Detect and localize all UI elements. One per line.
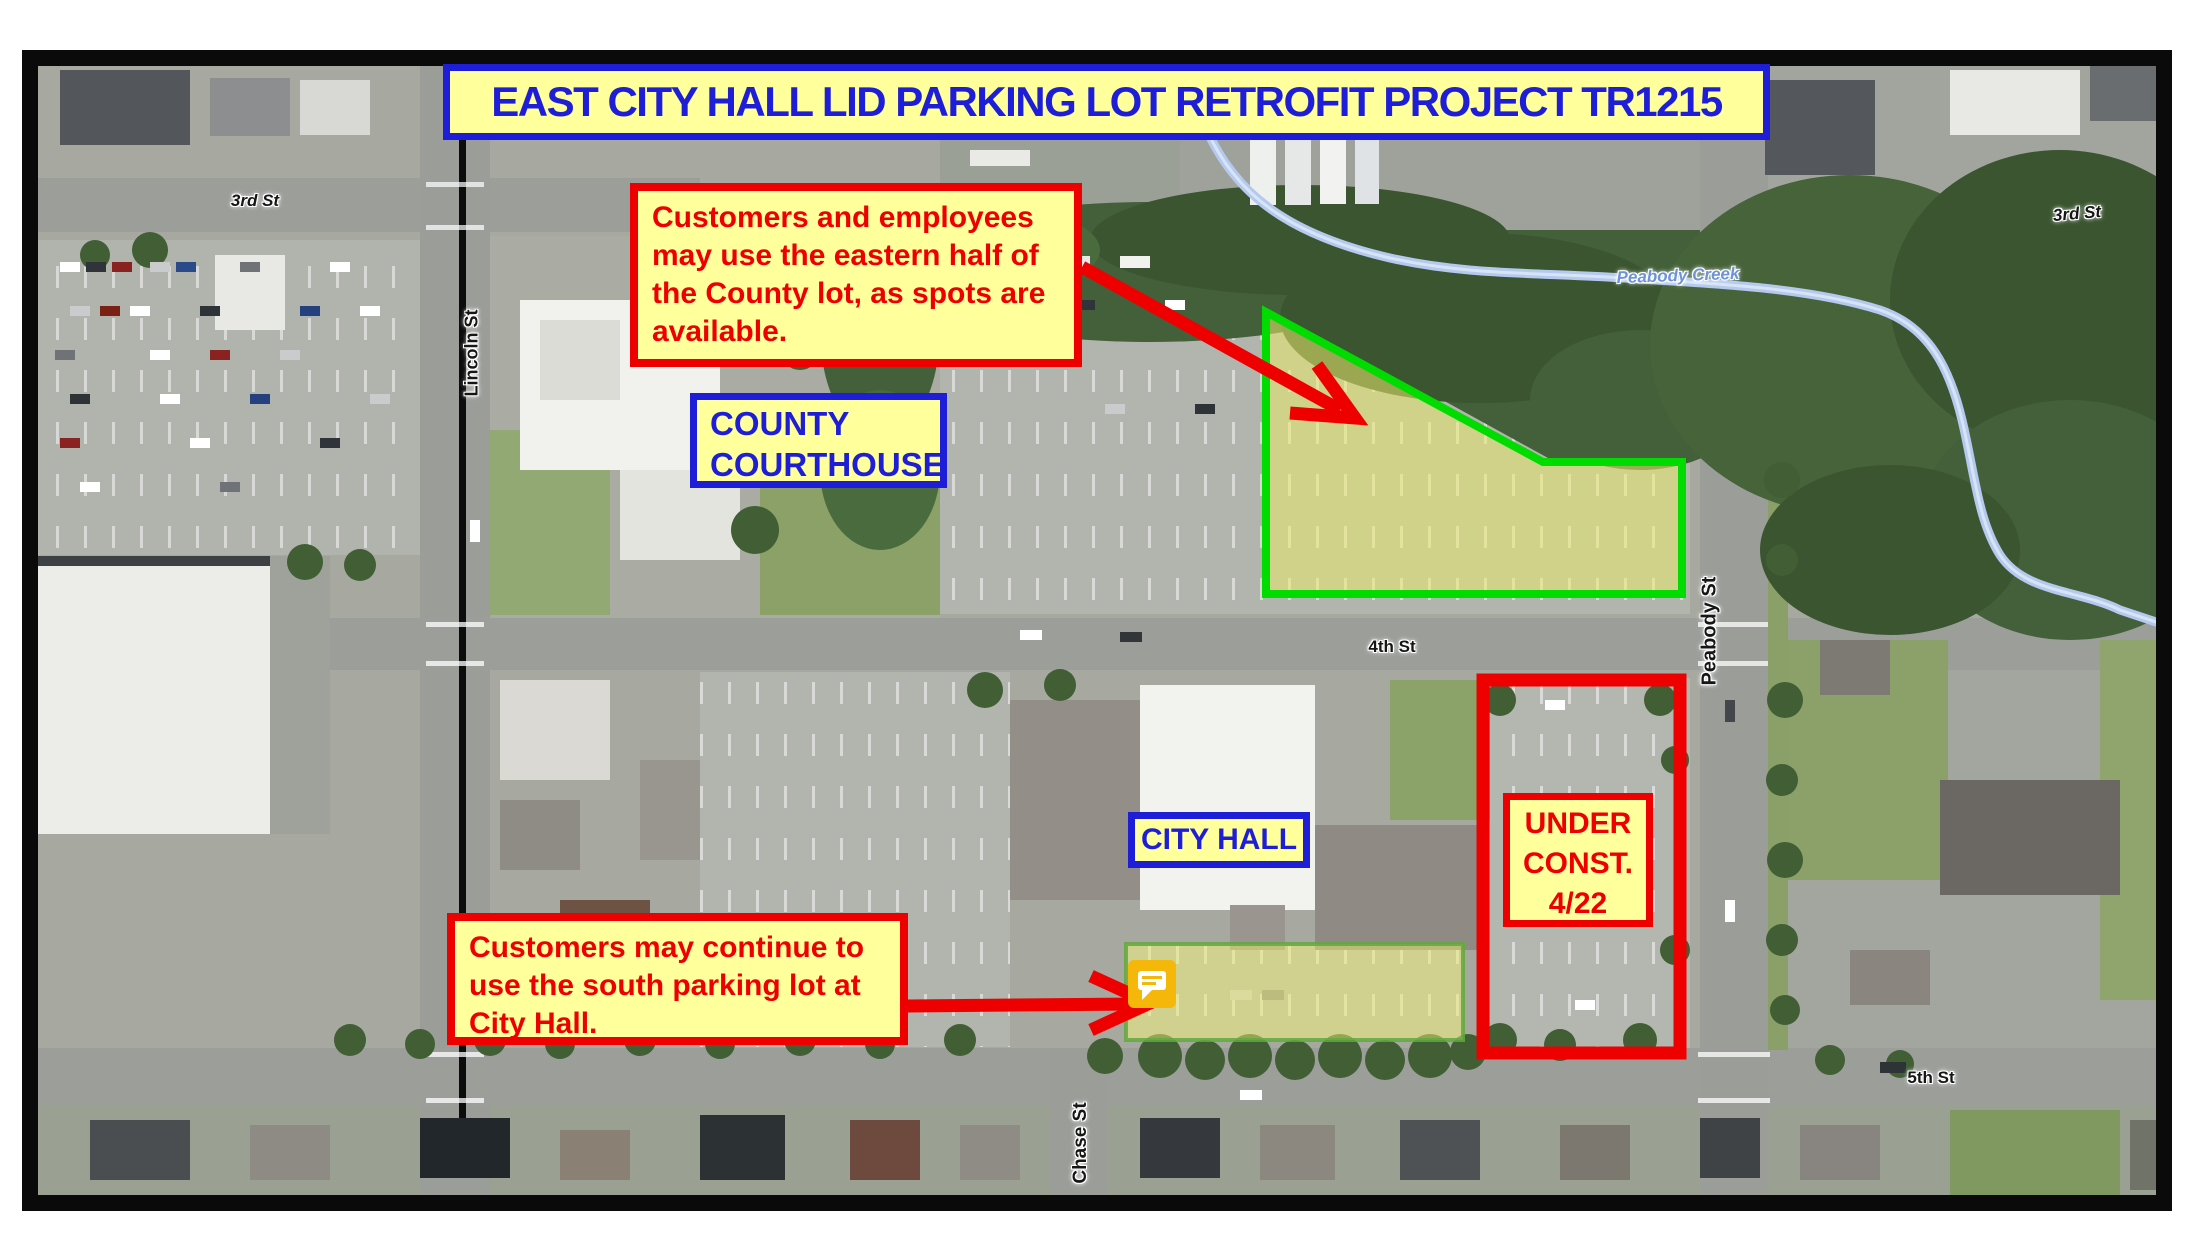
callout-county-line1: Customers and employees (652, 199, 1074, 237)
south-lot-highlight (1126, 944, 1463, 1040)
callout-south-lot: Customers may continue to use the south … (447, 913, 908, 1045)
street-label-3rd-st-east: 3rd St (2052, 202, 2102, 226)
county-courthouse-label: COUNTY COURTHOUSE (690, 393, 947, 488)
city-hall-building (1140, 685, 1315, 910)
street-label-chase-st: Chase St (1070, 1102, 1092, 1183)
map-frame (22, 50, 2172, 1211)
aerial-basemap (38, 66, 2156, 1195)
callout-south-line2: use the south parking lot at (469, 967, 900, 1005)
county-courthouse-line1: COUNTY (710, 403, 940, 444)
under-construction-label: UNDER CONST. 4/22 (1503, 793, 1653, 927)
title-banner: EAST CITY HALL LID PARKING LOT RETROFIT … (443, 64, 1770, 140)
callout-county-line2: may use the eastern half of (652, 237, 1074, 275)
street-label-lincoln-st: Lincoln St (462, 310, 483, 397)
under-const-line3: 4/22 (1510, 884, 1646, 924)
note-marker-icon (1128, 960, 1176, 1008)
city-hall-label: CITY HALL (1128, 812, 1310, 868)
callout-county-line4: available. (652, 313, 1074, 351)
street-label-3rd-st-west: 3rd St (231, 191, 279, 211)
street-label-5th-st: 5th St (1907, 1068, 1954, 1088)
water-label-peabody-creek: Peabody Creek (1616, 264, 1739, 288)
county-courthouse-line2: COURTHOUSE (710, 444, 940, 485)
callout-county-lot: Customers and employees may use the east… (630, 183, 1082, 367)
city-hall-text: CITY HALL (1141, 823, 1297, 857)
callout-county-line3: the County lot, as spots are (652, 275, 1074, 313)
annotated-aerial-map-page: { "title_banner": { "text": "EAST CITY H… (0, 0, 2200, 1255)
street-label-peabody-st: Peabody St (1699, 577, 1722, 686)
title-text: EAST CITY HALL LID PARKING LOT RETROFIT … (491, 78, 1721, 126)
under-const-line2: CONST. (1510, 844, 1646, 884)
street-label-4th-st: 4th St (1368, 637, 1415, 657)
callout-south-line3: City Hall. (469, 1005, 900, 1043)
under-const-line1: UNDER (1510, 804, 1646, 844)
callout-south-line1: Customers may continue to (469, 929, 900, 967)
